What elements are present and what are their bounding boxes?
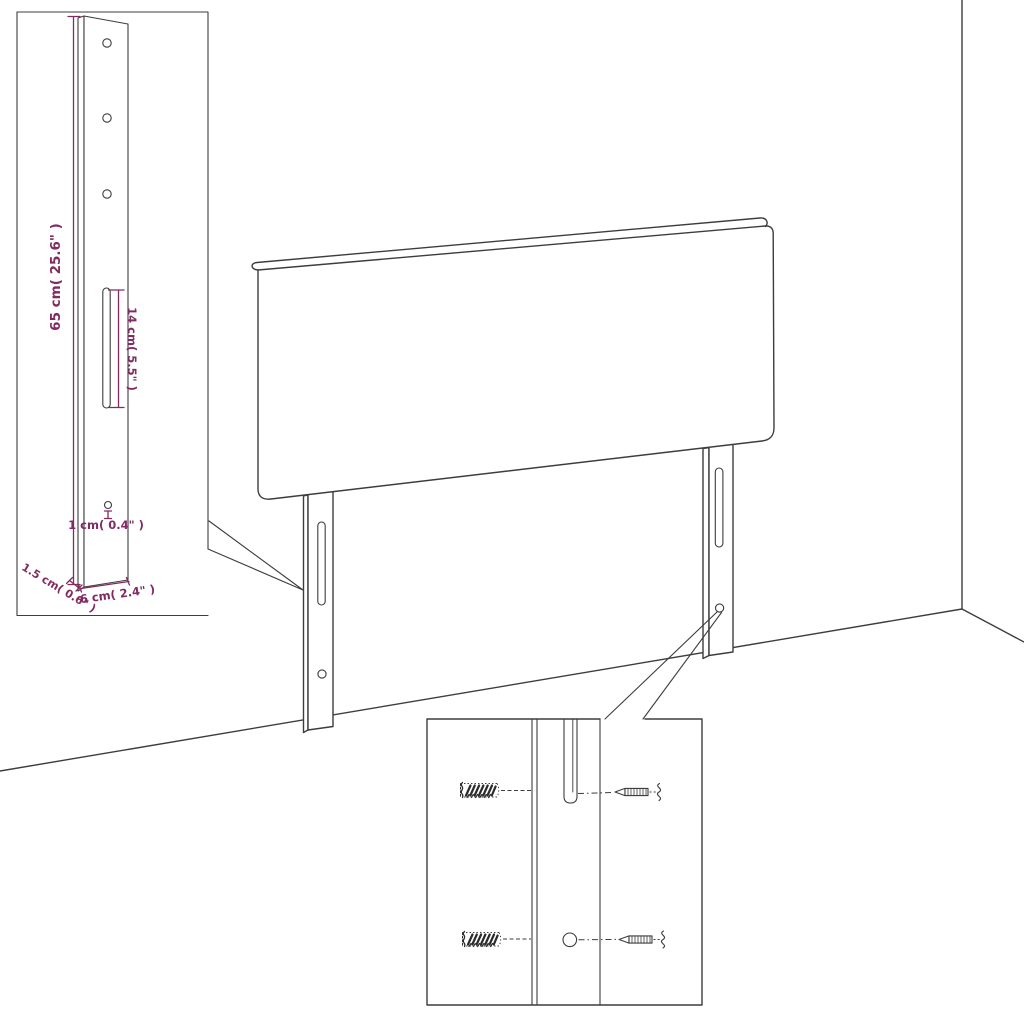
headboard-panel [252,218,774,499]
left-leg-slot [318,522,325,605]
mounting-detail-inset [427,612,722,1006]
dimension-height: 65 cm( 25.6" ) [48,17,80,585]
leg-inset-callout-lines [208,521,303,590]
inset-leg-small-hole [105,502,112,509]
dimension-height-label: 65 cm( 25.6" ) [48,223,64,331]
inset-leg-hole-2 [103,114,111,122]
right-leg-slot [715,468,723,547]
wall-plug-screw-bottom [463,932,501,947]
floor-line-left [0,609,962,771]
inset-leg-hole-3 [103,190,111,198]
mounting-screw-bottom [619,931,665,948]
headboard-dimension-diagram: 65 cm( 25.6" ) 14 cm( 5.5" ) 1 cm( 0.4" … [0,0,1024,1024]
headboard-front-face [258,226,774,499]
leader-top-right [578,793,613,794]
wall-plug-screw-top [461,783,499,798]
mounting-slot [564,720,577,804]
right-leg-hole [716,604,724,612]
inset-leg-hole-1 [103,39,111,47]
right-leg [703,444,733,659]
right-leg-side-face [703,448,709,659]
floor-line-right [962,609,1024,642]
mounting-leg-strip [532,719,600,1005]
mounting-screw-top [615,784,661,801]
mounting-hole [563,933,577,947]
diagram-canvas: 65 cm( 25.6" ) 14 cm( 5.5" ) 1 cm( 0.4" … [0,0,1024,1024]
dimension-slot-label: 14 cm( 5.5" ) [125,307,139,391]
inset-leg-side-face [78,16,84,591]
left-leg-hole [318,670,326,678]
inset-leg-slot [103,288,110,408]
left-leg [304,491,334,733]
dimension-hole-label: 1 cm( 0.4" ) [68,518,144,532]
